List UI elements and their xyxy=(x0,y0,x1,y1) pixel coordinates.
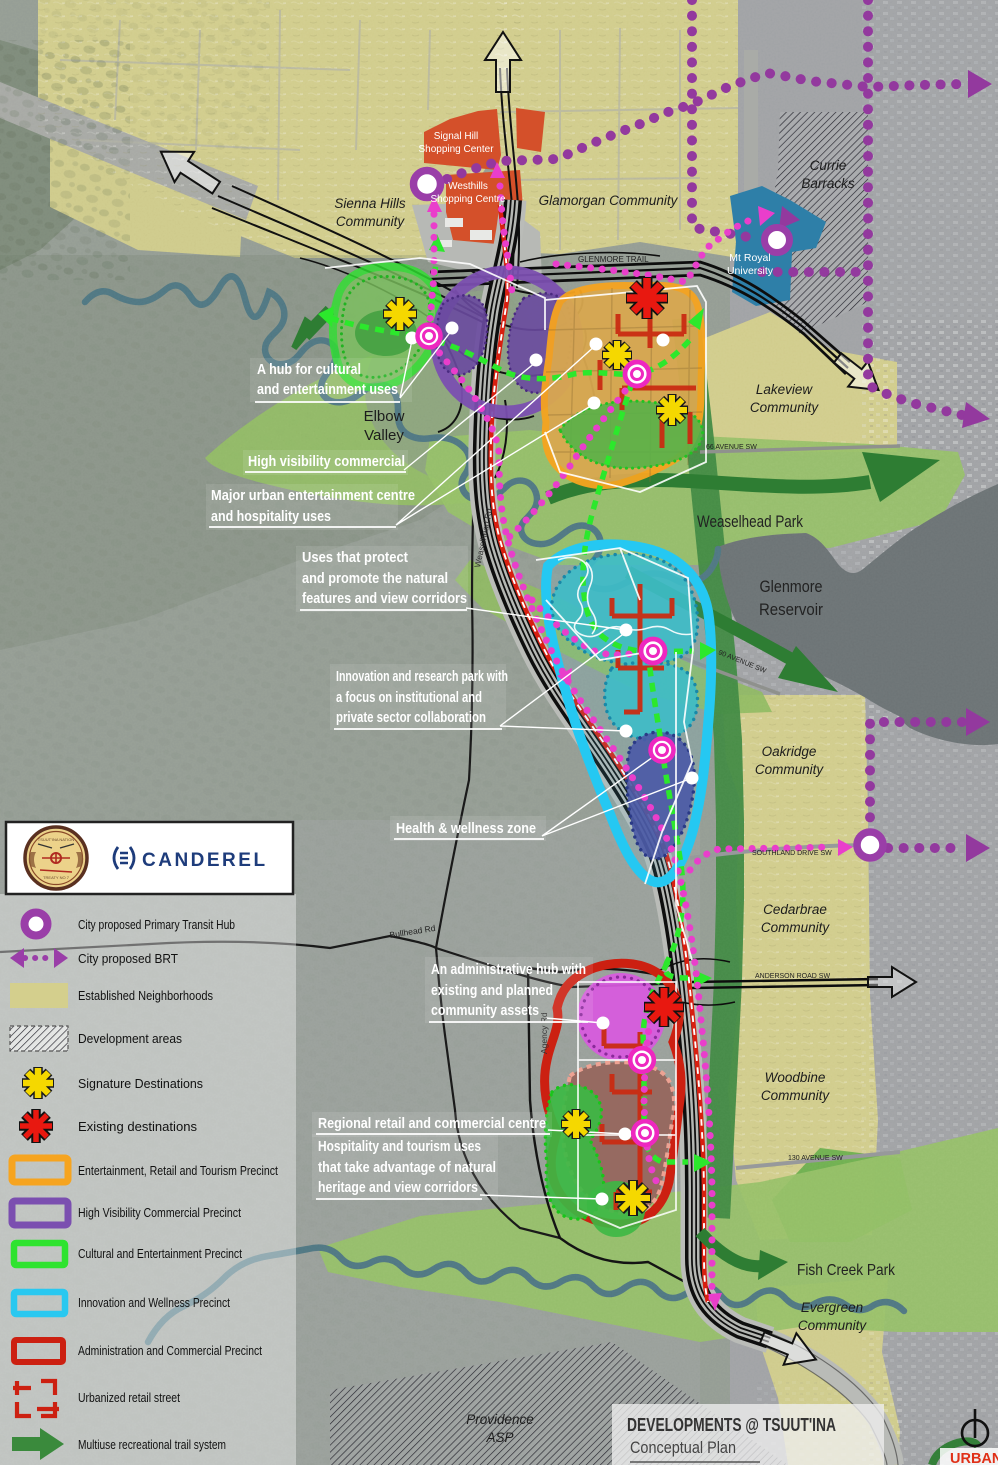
svg-text:Providence: Providence xyxy=(466,1412,534,1427)
svg-text:Mt Royal: Mt Royal xyxy=(729,252,770,264)
svg-text:Reservoir: Reservoir xyxy=(759,600,823,619)
svg-text:Signature Destinations: Signature Destinations xyxy=(78,1076,203,1091)
svg-text:A hub for cultural: A hub for cultural xyxy=(257,361,361,378)
svg-text:Oakridge: Oakridge xyxy=(762,744,817,759)
svg-text:University: University xyxy=(727,265,774,277)
svg-text:Shopping Center: Shopping Center xyxy=(418,144,494,155)
svg-text:Community: Community xyxy=(761,1088,831,1103)
svg-text:Development areas: Development areas xyxy=(78,1031,182,1046)
svg-text:Community: Community xyxy=(761,920,831,935)
svg-text:Woodbine: Woodbine xyxy=(765,1070,826,1085)
svg-text:Established Neighborhoods: Established Neighborhoods xyxy=(78,988,213,1003)
svg-text:URBAN: URBAN xyxy=(950,1451,998,1465)
svg-text:City proposed Primary Transit: City proposed Primary Transit Hub xyxy=(78,917,235,932)
svg-text:Sienna Hills: Sienna Hills xyxy=(334,196,406,211)
svg-text:community assets: community assets xyxy=(431,1002,539,1019)
svg-text:ANDERSON ROAD SW: ANDERSON ROAD SW xyxy=(755,973,830,980)
svg-text:Westhills: Westhills xyxy=(448,181,488,192)
svg-text:Fish Creek Park: Fish Creek Park xyxy=(797,1262,896,1279)
svg-text:Uses that protect: Uses that protect xyxy=(302,549,408,566)
svg-text:Glamorgan Community: Glamorgan Community xyxy=(539,193,679,208)
svg-text:DEVELOPMENTS @ TSUUT'INA: DEVELOPMENTS @ TSUUT'INA xyxy=(627,1415,836,1435)
svg-text:and hospitality uses: and hospitality uses xyxy=(211,508,331,525)
svg-text:Community: Community xyxy=(755,762,825,777)
svg-text:An administrative hub with: An administrative hub with xyxy=(431,961,586,978)
svg-text:TREATY NO 7: TREATY NO 7 xyxy=(43,875,70,880)
svg-text:Health & wellness zone: Health & wellness zone xyxy=(396,820,536,837)
svg-text:and promote the natural: and promote the natural xyxy=(302,570,448,587)
svg-text:features and view corridors: features and view corridors xyxy=(302,590,467,607)
svg-text:CANDEREL: CANDEREL xyxy=(142,850,268,871)
svg-text:Entertainment, Retail and Tour: Entertainment, Retail and Tourism Precin… xyxy=(78,1163,278,1178)
svg-text:High visibility commercial: High visibility commercial xyxy=(248,453,405,470)
svg-text:TSUUT'INA NATION: TSUUT'INA NATION xyxy=(38,837,75,842)
svg-text:Evergreen: Evergreen xyxy=(801,1300,863,1315)
svg-text:Cedarbrae: Cedarbrae xyxy=(763,902,827,917)
svg-text:City proposed BRT: City proposed BRT xyxy=(78,951,178,966)
svg-text:Urbanized retail street: Urbanized retail street xyxy=(78,1390,180,1405)
svg-text:Weaselhead Park: Weaselhead Park xyxy=(697,512,803,531)
svg-text:private sector collaboration: private sector collaboration xyxy=(336,709,486,726)
svg-text:that take advantage of natural: that take advantage of natural xyxy=(318,1159,496,1176)
svg-text:Innovation and Wellness Precin: Innovation and Wellness Precinct xyxy=(78,1295,230,1310)
svg-text:Community: Community xyxy=(798,1318,868,1333)
svg-text:Currie: Currie xyxy=(810,158,847,173)
svg-text:Conceptual Plan: Conceptual Plan xyxy=(630,1439,736,1457)
svg-text:High Visibility Commercial Pre: High Visibility Commercial Precinct xyxy=(78,1205,241,1220)
svg-text:ASP: ASP xyxy=(485,1430,513,1445)
svg-text:heritage and view corridors: heritage and view corridors xyxy=(318,1179,478,1196)
svg-text:Barracks: Barracks xyxy=(801,176,855,191)
svg-text:Signal Hill: Signal Hill xyxy=(434,131,478,142)
svg-text:existing and planned: existing and planned xyxy=(431,982,553,999)
svg-text:and entertainment uses: and entertainment uses xyxy=(257,381,398,398)
svg-text:SOUTHLAND DRIVE SW: SOUTHLAND DRIVE SW xyxy=(752,850,832,857)
svg-text:Lakeview: Lakeview xyxy=(756,382,814,397)
svg-text:Regional retail and commercial: Regional retail and commercial centre xyxy=(318,1115,546,1132)
svg-text:Existing destinations: Existing destinations xyxy=(78,1119,197,1134)
svg-text:Administration and Commercial: Administration and Commercial Precinct xyxy=(78,1343,262,1358)
svg-text:Valley: Valley xyxy=(364,427,404,444)
svg-text:Major urban entertainment cen: Major urban entertainment centre xyxy=(211,487,415,504)
svg-text:Shopping Centre: Shopping Centre xyxy=(430,194,505,205)
svg-text:GLENMORE TRAIL: GLENMORE TRAIL xyxy=(578,255,649,264)
svg-text:Innovation and research park w: Innovation and research park with xyxy=(336,668,508,685)
svg-text:130 AVENUE SW: 130 AVENUE SW xyxy=(788,1155,843,1162)
svg-text:Multiuse recreational trail sy: Multiuse recreational trail system xyxy=(78,1437,226,1452)
svg-text:66 AVENUE SW: 66 AVENUE SW xyxy=(706,444,757,451)
svg-text:Community: Community xyxy=(336,214,406,229)
svg-text:a focus on institutional and: a focus on institutional and xyxy=(336,689,482,706)
svg-text:Hospitality and tourism uses: Hospitality and tourism uses xyxy=(318,1138,481,1155)
svg-text:Elbow: Elbow xyxy=(364,408,405,425)
svg-text:Cultural and Entertainment Pre: Cultural and Entertainment Precinct xyxy=(78,1246,242,1261)
svg-text:Glenmore: Glenmore xyxy=(760,577,823,596)
svg-text:Community: Community xyxy=(750,400,820,415)
